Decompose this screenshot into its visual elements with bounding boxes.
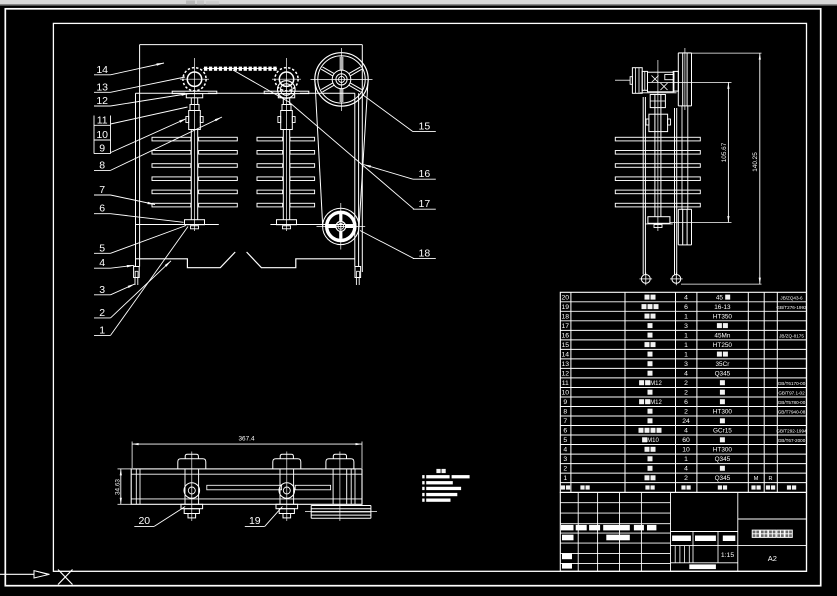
svg-text:8: 8	[99, 159, 105, 171]
svg-text:16: 16	[419, 168, 431, 180]
svg-text:9: 9	[99, 143, 105, 155]
svg-text:3: 3	[684, 323, 688, 330]
svg-text:6: 6	[684, 399, 688, 406]
svg-text:JB/ZQ43-6: JB/ZQ43-6	[780, 296, 803, 301]
svg-text:3: 3	[99, 284, 105, 296]
svg-text:4: 4	[563, 447, 567, 454]
svg-text:3: 3	[684, 361, 688, 368]
svg-text:HT300: HT300	[713, 409, 733, 416]
svg-text:GB/T5780-00: GB/T5780-00	[778, 400, 806, 405]
svg-text:GCr15: GCr15	[713, 428, 732, 435]
svg-text:14: 14	[562, 352, 570, 359]
svg-text:12: 12	[562, 371, 570, 378]
svg-text:M: M	[754, 476, 759, 482]
svg-text:4: 4	[684, 371, 688, 378]
svg-text:1: 1	[684, 333, 688, 340]
svg-text:3: 3	[563, 456, 567, 463]
svg-text:2: 2	[684, 475, 688, 482]
svg-text:7: 7	[563, 418, 567, 425]
svg-text:2: 2	[684, 380, 688, 387]
svg-text:16: 16	[562, 333, 570, 340]
svg-text:10: 10	[562, 390, 570, 397]
svg-text:17: 17	[562, 323, 570, 330]
svg-text:8: 8	[563, 409, 567, 416]
svg-text:35Cr: 35Cr	[715, 361, 730, 368]
svg-text:1: 1	[684, 352, 688, 359]
svg-text:HT300: HT300	[713, 447, 733, 454]
svg-text:18: 18	[419, 248, 431, 260]
svg-text:1: 1	[684, 314, 688, 321]
svg-text:1:15: 1:15	[721, 552, 734, 559]
svg-text:24: 24	[682, 418, 690, 425]
svg-text:5: 5	[563, 437, 567, 444]
svg-text:6: 6	[563, 428, 567, 435]
svg-text:20: 20	[562, 295, 570, 302]
svg-text:2: 2	[684, 409, 688, 416]
svg-text:GB/T7940-08: GB/T7940-08	[778, 410, 806, 415]
svg-text:19: 19	[562, 304, 570, 311]
svg-text:HT250: HT250	[713, 342, 733, 349]
svg-text:7: 7	[99, 184, 105, 196]
svg-text:16-13: 16-13	[714, 304, 731, 311]
svg-text:1: 1	[684, 456, 688, 463]
svg-text:9: 9	[563, 399, 567, 406]
svg-text:6: 6	[684, 304, 688, 311]
svg-text:4: 4	[99, 257, 105, 269]
svg-text:367.4: 367.4	[239, 436, 255, 443]
svg-text:GB/T292-1994: GB/T292-1994	[776, 429, 807, 434]
svg-text:4: 4	[684, 466, 688, 473]
svg-text:GB/T276-1993: GB/T276-1993	[776, 305, 807, 310]
svg-text:GB/T97.1-02: GB/T97.1-02	[778, 391, 805, 396]
svg-text:11: 11	[562, 380, 569, 387]
svg-text:4: 4	[684, 428, 688, 435]
svg-text:19: 19	[249, 515, 261, 527]
svg-text:12: 12	[96, 95, 108, 107]
svg-text:2: 2	[563, 466, 567, 473]
svg-text:1: 1	[684, 342, 688, 349]
svg-text:140.25: 140.25	[752, 152, 759, 172]
svg-text:105.67: 105.67	[721, 142, 728, 162]
svg-text:JB/ZQ-8175: JB/ZQ-8175	[779, 334, 804, 339]
svg-text:10: 10	[682, 447, 690, 454]
svg-text:Q345: Q345	[715, 475, 731, 482]
svg-text:20: 20	[138, 515, 150, 527]
svg-text:45Mn: 45Mn	[714, 333, 730, 340]
svg-text:14: 14	[96, 64, 108, 76]
svg-text:GB/T67-2000: GB/T67-2000	[778, 438, 806, 443]
svg-text:6: 6	[99, 203, 105, 215]
svg-text:17: 17	[419, 198, 431, 210]
svg-text:60: 60	[682, 437, 690, 444]
svg-text:1: 1	[99, 324, 105, 336]
svg-text:M12: M12	[650, 400, 662, 406]
svg-text:15: 15	[562, 342, 570, 349]
svg-text:18: 18	[562, 314, 570, 321]
svg-text:34.63: 34.63	[114, 479, 121, 495]
svg-text:2: 2	[99, 307, 105, 319]
svg-text:GB/T6170-00: GB/T6170-00	[778, 381, 806, 386]
svg-text:5: 5	[99, 242, 105, 254]
svg-text:Q345: Q345	[715, 371, 731, 378]
svg-text:1: 1	[563, 475, 567, 482]
svg-text:10: 10	[96, 129, 108, 141]
svg-text:4: 4	[684, 295, 688, 302]
svg-text:R: R	[769, 476, 773, 482]
svg-text:Q345: Q345	[715, 456, 731, 463]
svg-text:HT350: HT350	[713, 314, 733, 321]
svg-text:11: 11	[97, 114, 108, 126]
svg-text:A2: A2	[768, 554, 777, 563]
svg-text:45: 45	[716, 295, 724, 302]
svg-text:M10: M10	[647, 438, 659, 444]
svg-text:15: 15	[419, 121, 431, 133]
svg-text:13: 13	[562, 361, 570, 368]
svg-text:M12: M12	[650, 381, 662, 387]
svg-text:2: 2	[684, 390, 688, 397]
svg-text:13: 13	[96, 81, 108, 93]
